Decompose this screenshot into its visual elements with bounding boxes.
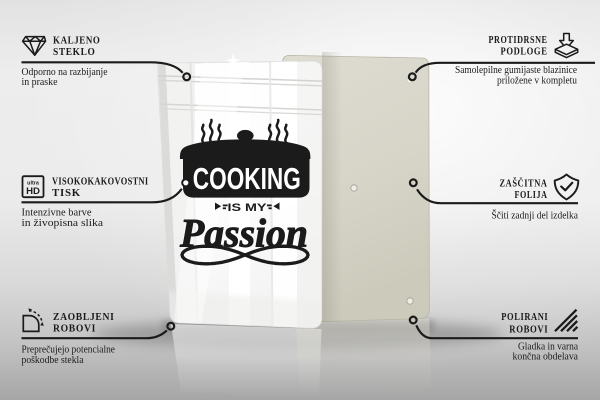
- svg-text:PODLOGE: PODLOGE: [501, 47, 548, 58]
- svg-text:Ščiti zadnji del izdelka: Ščiti zadnji del izdelka: [492, 210, 579, 222]
- svg-text:FOLIJA: FOLIJA: [515, 190, 548, 201]
- svg-text:Passion: Passion: [179, 211, 308, 256]
- svg-text:ROBOVI: ROBOVI: [53, 324, 96, 335]
- svg-text:ZAŠČITNA: ZAŠČITNA: [500, 176, 548, 189]
- svg-text:končna obdelava: končna obdelava: [513, 352, 579, 363]
- svg-text:PROTIDRSNE: PROTIDRSNE: [489, 35, 548, 46]
- svg-text:VISOKOKAKOVOSTNI: VISOKOKAKOVOSTNI: [52, 176, 149, 187]
- svg-text:Preprečujejo potencialne: Preprečujejo potencialne: [22, 345, 116, 356]
- svg-text:TISK: TISK: [52, 188, 81, 199]
- svg-text:ZAOBLJENI: ZAOBLJENI: [53, 312, 115, 323]
- svg-text:in živopisna slika: in živopisna slika: [22, 218, 104, 229]
- svg-text:COOKING: COOKING: [193, 161, 301, 196]
- svg-text:priložene v kompletu: priložene v kompletu: [497, 75, 578, 86]
- svg-text:HD: HD: [26, 186, 40, 197]
- svg-text:Odporno na razbijanje: Odporno na razbijanje: [22, 67, 108, 78]
- svg-text:in praske: in praske: [22, 77, 58, 88]
- svg-text:KALJENO: KALJENO: [53, 35, 101, 46]
- svg-text:STEKLO: STEKLO: [53, 47, 96, 58]
- svg-text:POLIRANI: POLIRANI: [501, 312, 548, 323]
- svg-text:poškodbe stekla: poškodbe stekla: [22, 355, 84, 366]
- svg-text:ROBOVI: ROBOVI: [509, 324, 548, 335]
- svg-text:Intenzivne barve: Intenzivne barve: [22, 208, 92, 219]
